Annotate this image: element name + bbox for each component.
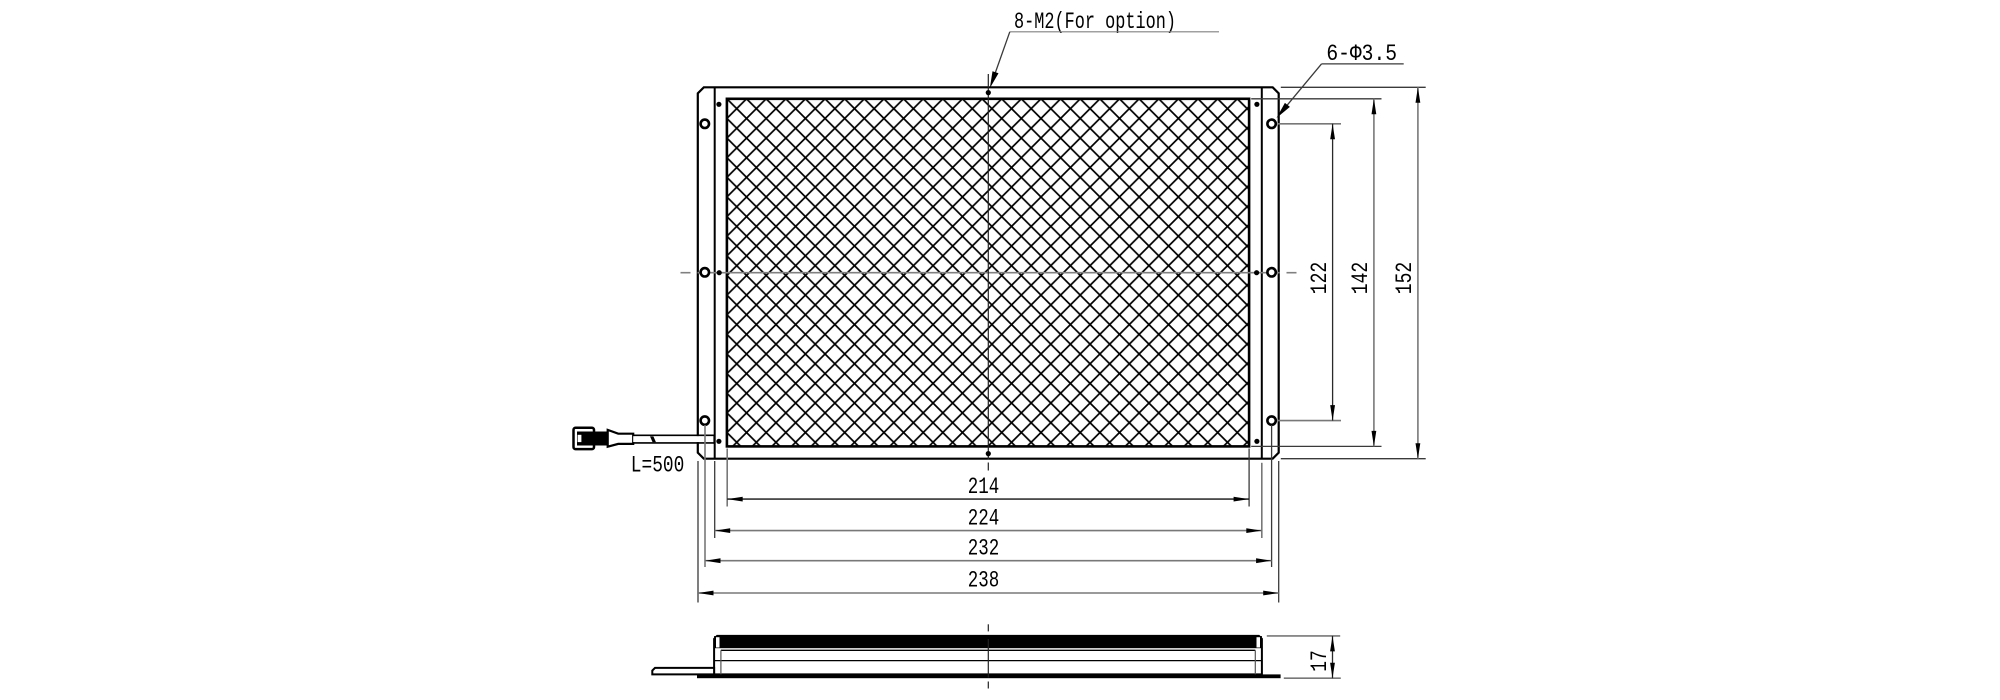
- svg-text:142: 142: [1348, 262, 1375, 295]
- svg-text:214: 214: [968, 474, 1000, 501]
- svg-text:238: 238: [968, 568, 1000, 595]
- svg-text:L=500: L=500: [631, 453, 685, 480]
- svg-text:17: 17: [1307, 650, 1334, 672]
- svg-text:224: 224: [968, 505, 1000, 532]
- svg-text:122: 122: [1307, 262, 1334, 295]
- svg-text:232: 232: [968, 535, 1000, 562]
- svg-text:152: 152: [1392, 262, 1419, 295]
